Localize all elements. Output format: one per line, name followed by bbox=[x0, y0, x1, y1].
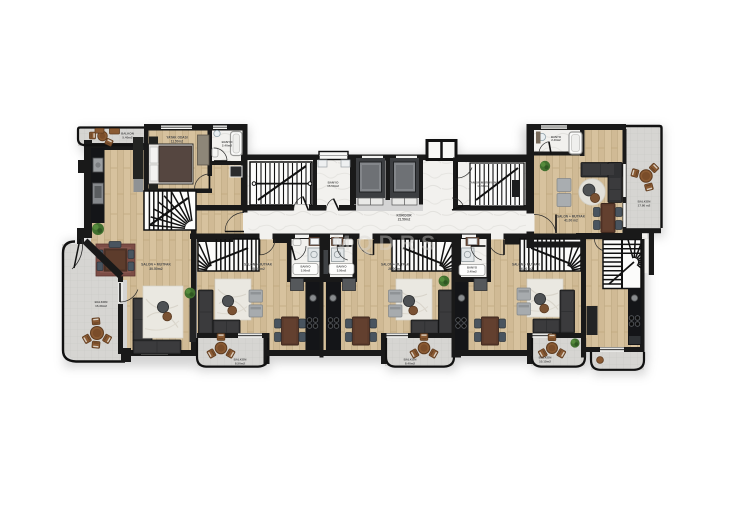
svg-text:41.00 m2: 41.00 m2 bbox=[564, 219, 578, 223]
svg-text:2.40m2: 2.40m2 bbox=[467, 269, 477, 273]
svg-text:17.80 m2: 17.80 m2 bbox=[638, 204, 651, 208]
svg-text:3.50m2: 3.50m2 bbox=[301, 268, 311, 272]
svg-text:26.00 m2: 26.00 m2 bbox=[519, 267, 533, 271]
svg-text:21.50m2: 21.50m2 bbox=[398, 218, 411, 222]
svg-text:2.40m2: 2.40m2 bbox=[551, 138, 561, 142]
svg-text:SALON + MUTFAK: SALON + MUTFAK bbox=[141, 263, 171, 267]
svg-text:8.50m2: 8.50m2 bbox=[235, 361, 246, 365]
svg-text:2.40m2: 2.40m2 bbox=[222, 144, 233, 148]
svg-text:3.50m2: 3.50m2 bbox=[337, 268, 347, 272]
svg-text:26.00 m2: 26.00 m2 bbox=[388, 267, 402, 271]
svg-text:15.30m2: 15.30m2 bbox=[95, 304, 107, 308]
svg-text:11.50m2: 11.50m2 bbox=[171, 140, 184, 144]
svg-text:28.40 m2: 28.40 m2 bbox=[251, 267, 265, 271]
svg-text:30.50m2: 30.50m2 bbox=[149, 267, 162, 271]
svg-text:15.50m2: 15.50m2 bbox=[477, 184, 489, 188]
svg-text:8.40m2: 8.40m2 bbox=[405, 361, 416, 365]
svg-text:10.15m2: 10.15m2 bbox=[539, 359, 551, 363]
svg-text:MQDRS: MQDRS bbox=[333, 232, 441, 255]
svg-text:15.50m2: 15.50m2 bbox=[327, 184, 339, 188]
svg-text:5.40m2: 5.40m2 bbox=[122, 135, 133, 139]
